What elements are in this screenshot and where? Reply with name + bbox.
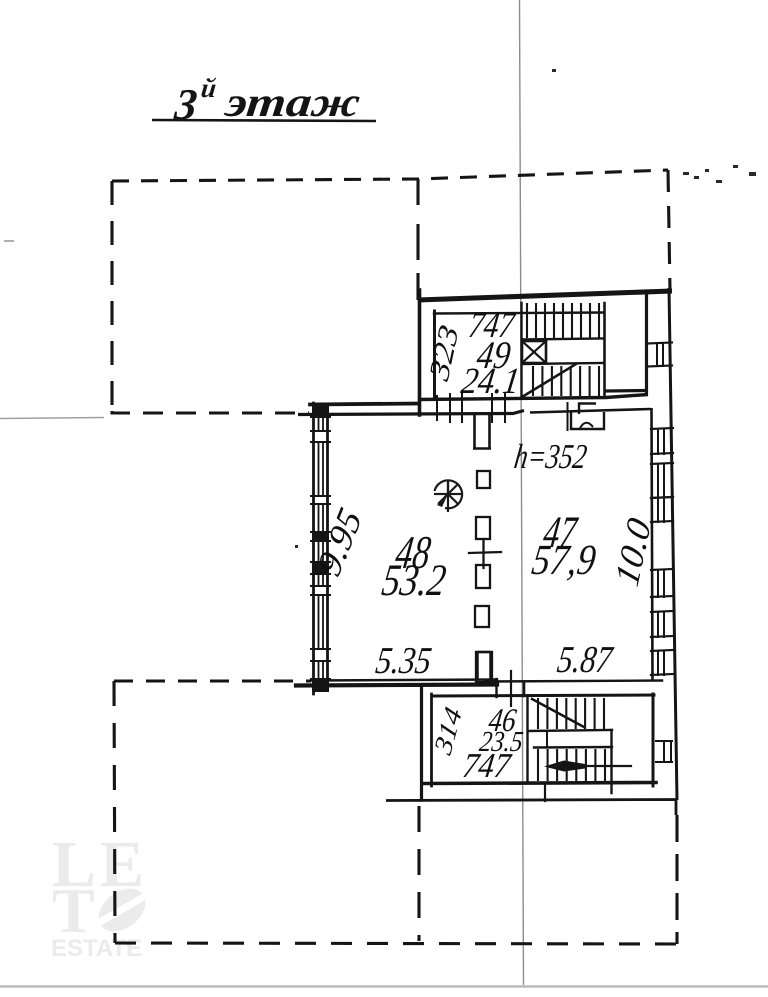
svg-text:24.1: 24.1 [459, 361, 523, 402]
svg-text:57,9: 57,9 [529, 536, 599, 584]
svg-text:5.87: 5.87 [555, 639, 616, 681]
svg-text:h=352: h=352 [512, 437, 589, 476]
svg-text:этаж: этаж [221, 79, 362, 126]
svg-text:ESTATE: ESTATE [51, 935, 142, 962]
svg-text:3: 3 [171, 80, 199, 129]
svg-text:53.2: 53.2 [379, 555, 449, 605]
svg-text:323: 323 [424, 321, 466, 386]
svg-text:747: 747 [460, 746, 514, 785]
svg-text:5.35: 5.35 [373, 640, 434, 682]
svg-text:й: й [200, 73, 218, 103]
svg-text:314: 314 [428, 703, 467, 760]
